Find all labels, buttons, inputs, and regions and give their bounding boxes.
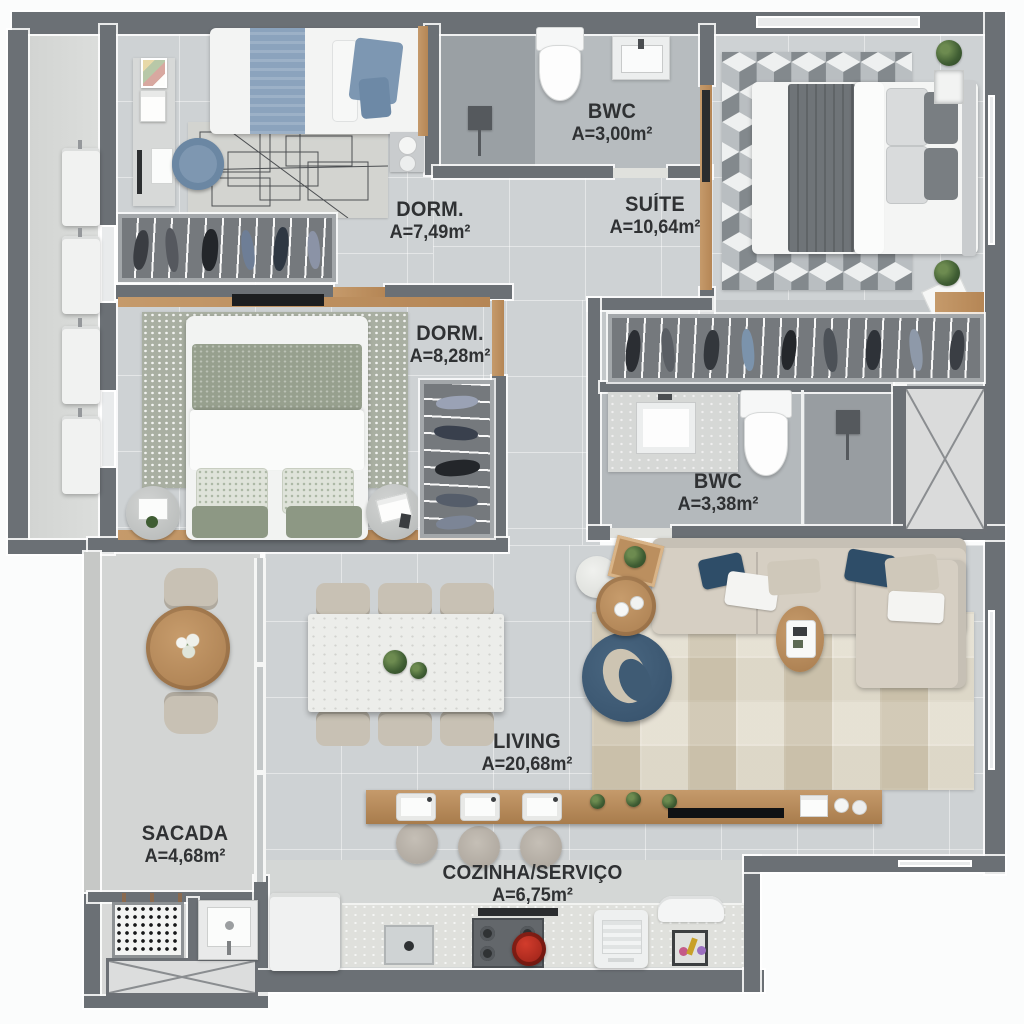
tv — [232, 294, 324, 306]
balcony-chair — [164, 568, 218, 610]
room-area: A=3,38m² — [647, 494, 790, 516]
tray — [786, 620, 816, 658]
decor-jar — [399, 155, 416, 172]
washer-lid — [602, 920, 642, 954]
laundry-appliance — [658, 896, 724, 922]
sofa-pillow-beige — [767, 558, 821, 596]
sofa-pillow-beige — [884, 553, 939, 594]
plate-dot — [427, 797, 432, 802]
door-leaf-suite — [702, 90, 710, 182]
room-area: A=4,68m² — [114, 846, 257, 868]
wall-segment — [588, 298, 600, 528]
sink-vanity — [612, 36, 670, 80]
window — [988, 95, 995, 245]
clothes-item — [436, 493, 479, 509]
cup — [614, 602, 629, 617]
wall-segment — [8, 30, 28, 546]
side-table — [366, 484, 422, 540]
shower-glass — [801, 390, 804, 524]
single-bed — [210, 28, 424, 134]
wall-poster — [141, 58, 167, 88]
shower-head-icon — [836, 410, 860, 434]
plant-icon — [590, 794, 605, 809]
closet-shelf — [935, 292, 984, 316]
bed-blanket — [192, 344, 362, 410]
bed-headboard — [418, 26, 428, 136]
decor-item — [399, 513, 411, 529]
bed-pillow — [286, 506, 362, 538]
wardrobe-suite — [608, 314, 984, 382]
room-area: A=6,75m² — [426, 885, 640, 907]
room-label-cozinha: COZINHA/SERVIÇO A=6,75m² — [426, 862, 640, 906]
decor-bowl — [834, 798, 849, 813]
plant-icon — [624, 546, 646, 568]
room-area: A=7,49m² — [359, 222, 502, 244]
cup — [630, 596, 644, 610]
double-bed-dorm2 — [186, 316, 368, 540]
accessories-tray — [672, 930, 708, 966]
decor-bowl — [852, 800, 867, 815]
room-name: LIVING — [456, 730, 599, 754]
floor-bwc1-shower — [433, 25, 535, 170]
ac-condenser-unit — [62, 326, 100, 404]
sofa-pillow-white — [887, 591, 944, 624]
room-name: BWC — [541, 100, 684, 124]
wall-segment — [88, 538, 508, 552]
clothes-item — [822, 327, 840, 372]
wall-segment — [84, 894, 100, 1008]
room-name: DORM. — [379, 322, 522, 346]
desk-chair — [172, 138, 224, 190]
place-setting — [522, 793, 562, 821]
service-tub — [198, 900, 258, 960]
clothes-item — [702, 329, 720, 370]
round-table — [146, 606, 230, 690]
technical-shaft — [903, 386, 987, 532]
wall-segment — [588, 526, 610, 540]
range-hood — [478, 908, 558, 916]
refrigerator — [270, 893, 340, 971]
keyboard — [151, 148, 173, 184]
room-label-suite: SUÍTE A=10,64m² — [584, 193, 727, 239]
clothes-item — [624, 329, 642, 372]
sink-basin — [621, 45, 663, 73]
room-name: SACADA — [114, 822, 257, 846]
plate-dot — [553, 797, 558, 802]
room-name: DORM. — [359, 198, 502, 222]
bed-pillow — [924, 148, 958, 200]
clothes-item — [164, 227, 181, 272]
wardrobe-dorm1 — [118, 214, 336, 282]
duvet-fold — [854, 82, 884, 254]
wardrobe-dorm2 — [420, 380, 494, 538]
floor-drain-grate — [112, 902, 184, 958]
clothes-item — [948, 329, 966, 370]
decor-item — [793, 640, 803, 648]
washer-controls — [608, 958, 634, 962]
art-frame — [934, 70, 964, 104]
balcony-chair — [164, 692, 218, 734]
kitchen-sink — [384, 925, 434, 965]
ac-condenser-unit — [62, 236, 100, 314]
ac-condenser-unit — [62, 416, 100, 494]
place-setting — [396, 793, 436, 821]
clothes-item — [435, 514, 476, 531]
partition-mullion — [254, 770, 266, 775]
shower-head-icon — [468, 106, 492, 130]
red-pot — [512, 932, 546, 966]
pipe-stub — [178, 893, 182, 902]
wall-segment — [433, 166, 613, 178]
pipe-stub — [150, 893, 154, 902]
bar-stool — [396, 822, 438, 864]
swivel-armchair — [582, 632, 672, 722]
window — [898, 860, 972, 867]
room-label-bwc2: BWC A=3,38m² — [647, 470, 790, 516]
room-area: A=3,00m² — [541, 124, 684, 146]
burner-icon — [480, 946, 495, 961]
window — [756, 16, 920, 28]
coffee-table-wood — [596, 576, 656, 636]
side-table — [126, 486, 180, 540]
double-bed-suite — [752, 82, 978, 254]
toilet — [539, 45, 581, 101]
wall-segment — [84, 996, 268, 1008]
toilet — [744, 412, 788, 476]
wall-poster — [140, 90, 166, 122]
decor-item — [793, 627, 807, 636]
bed-blanket — [788, 84, 856, 252]
flower-vase — [172, 630, 204, 662]
burner-icon — [480, 926, 495, 941]
plant-icon — [934, 260, 960, 286]
decor-item — [697, 946, 706, 955]
room-area: A=20,68m² — [456, 754, 599, 776]
wall-segment — [700, 25, 714, 85]
room-area: A=8,28m² — [379, 346, 522, 368]
pipe-stub — [122, 893, 126, 902]
room-name: BWC — [647, 470, 790, 494]
clothes-item — [433, 424, 478, 442]
washing-machine — [594, 910, 648, 968]
bed-pillow — [192, 506, 268, 538]
room-label-bwc1: BWC A=3,00m² — [541, 100, 684, 146]
wall-segment — [254, 970, 764, 992]
plant-icon — [626, 792, 641, 807]
dining-chair — [378, 710, 432, 746]
wall-segment — [492, 376, 506, 552]
bed-pillow — [886, 146, 928, 204]
place-setting — [460, 793, 500, 821]
service-shaft — [106, 958, 258, 996]
clothes-item — [907, 328, 924, 371]
clothes-item — [659, 327, 676, 372]
faucet-icon — [658, 394, 672, 400]
plant-icon — [383, 650, 407, 674]
vanity-counter — [608, 392, 738, 472]
duvet — [190, 410, 364, 470]
clothes-item — [865, 330, 883, 371]
tub-drain — [225, 921, 234, 930]
plant-icon — [662, 794, 677, 809]
decor-item — [686, 937, 697, 955]
room-name: COZINHA/SERVIÇO — [426, 862, 640, 885]
decor-book — [800, 795, 828, 817]
plant-icon — [936, 40, 962, 66]
faucet-icon — [227, 941, 231, 955]
bed-blanket — [250, 28, 305, 134]
clothes-item — [239, 229, 256, 270]
tv — [668, 808, 784, 818]
room-label-dorm2: DORM. A=8,28m² — [379, 322, 522, 368]
clothes-item — [740, 329, 756, 372]
wall-segment — [588, 298, 712, 310]
clothes-item — [436, 395, 479, 411]
room-name: SUÍTE — [584, 193, 727, 217]
bed-headboard — [962, 80, 976, 256]
floor-bwc2-shower — [805, 388, 893, 528]
door-threshold-bwc1 — [613, 168, 668, 178]
room-label-dorm1: DORM. A=7,49m² — [359, 198, 502, 244]
decor-plant — [146, 516, 158, 528]
clothes-item — [131, 229, 150, 271]
sink-basin — [636, 402, 696, 454]
faucet-icon — [404, 941, 414, 951]
dining-chair — [316, 710, 370, 746]
faucet-icon — [638, 39, 644, 49]
room-label-living: LIVING A=20,68m² — [456, 730, 599, 776]
floor-plan: DORM. A=7,49m² BWC A=3,00m² SUÍTE A=10,6… — [0, 0, 1024, 1024]
window — [100, 390, 116, 468]
clothes-item — [780, 329, 799, 370]
room-label-sacada: SACADA A=4,68m² — [114, 822, 257, 868]
bed-pillow — [886, 88, 928, 146]
nightstand — [390, 132, 424, 172]
door-threshold-dorm1 — [333, 287, 385, 297]
partition-mullion — [254, 662, 266, 667]
clothes-item — [434, 458, 480, 478]
plant-icon — [410, 662, 427, 679]
bed-pillow — [358, 77, 391, 119]
clothes-item — [272, 226, 291, 271]
balcony-parapet — [84, 552, 100, 896]
window — [988, 610, 995, 770]
monitor — [137, 150, 142, 194]
oval-side-table — [776, 606, 824, 672]
window — [100, 225, 116, 303]
ac-condenser-unit — [62, 148, 100, 226]
plate-dot — [491, 797, 496, 802]
room-area: A=10,64m² — [584, 217, 727, 239]
clothes-item — [201, 228, 220, 271]
wall-segment — [744, 856, 760, 992]
wall-segment — [188, 898, 198, 958]
clothes-item — [306, 231, 321, 270]
decor-jar — [398, 136, 417, 155]
